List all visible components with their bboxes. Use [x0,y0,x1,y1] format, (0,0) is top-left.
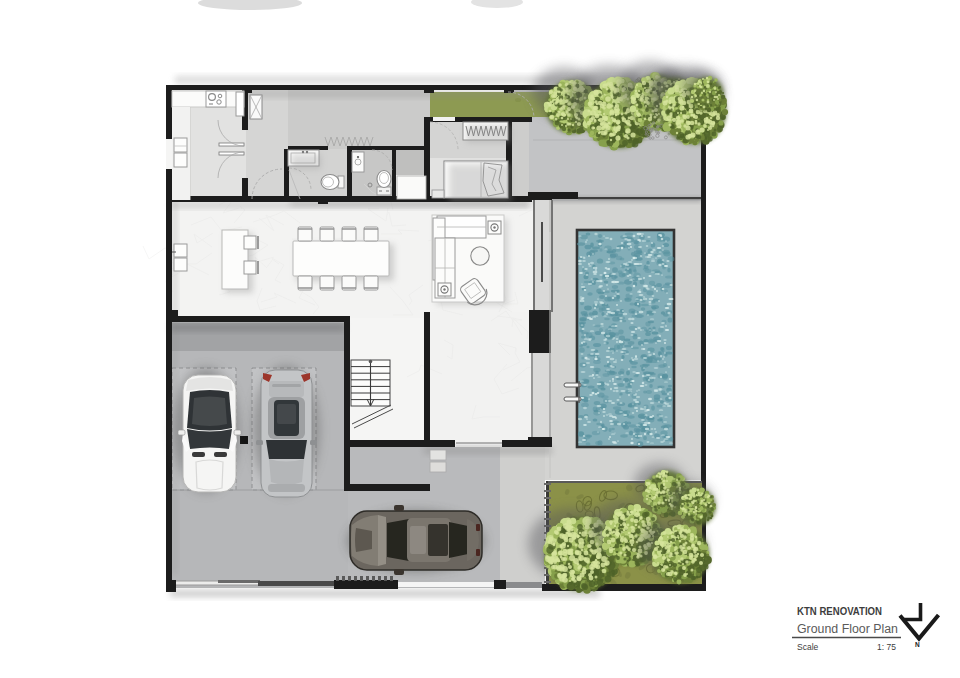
svg-text:Ground Floor Plan: Ground Floor Plan [797,622,898,636]
svg-text:1: 75: 1: 75 [877,642,896,652]
svg-text:KTN RENOVATION: KTN RENOVATION [797,605,882,617]
svg-text:Scale: Scale [797,642,819,652]
svg-text:N: N [915,641,920,648]
